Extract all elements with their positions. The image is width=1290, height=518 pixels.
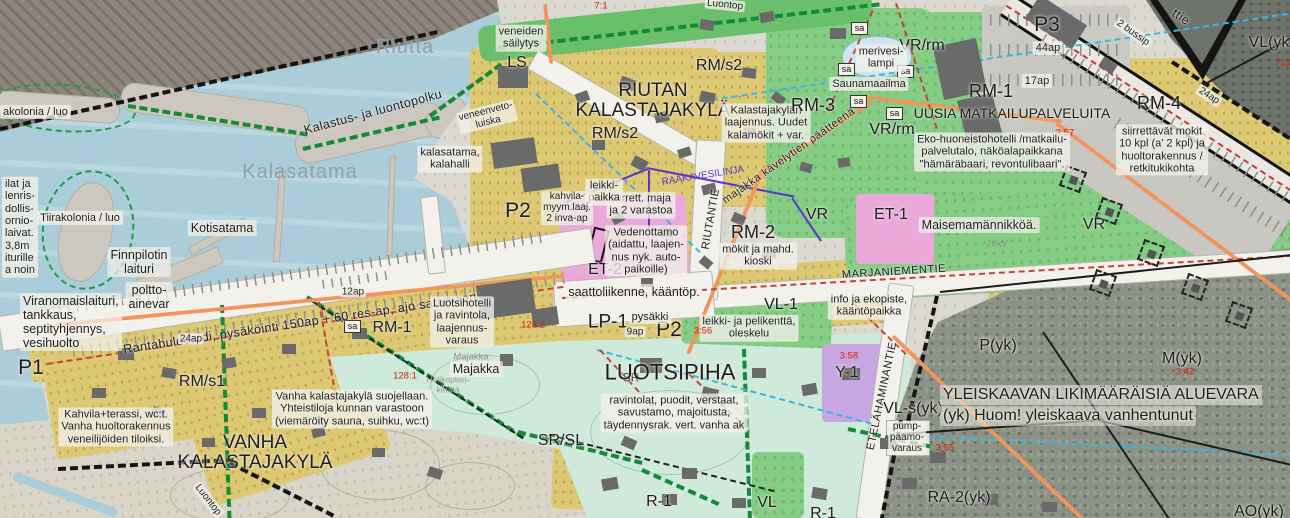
map-label-pys-kki: pysäkki bbox=[629, 310, 672, 324]
map-label-vr-rm: VR/rm bbox=[869, 121, 914, 139]
map-label-luotsipiha: LUOTSIPIHA bbox=[605, 361, 736, 386]
map-label-y-1: Y-1 bbox=[835, 364, 858, 382]
map-label-eko-huoneistohotelli-matkail: Eko-huoneistohotelli /matkailu- palvelut… bbox=[914, 133, 1070, 172]
map-label-luontop: Luontop bbox=[704, 0, 745, 13]
map-label-vl-yk: VL(yk bbox=[1249, 34, 1290, 52]
map-label-7-1: 7:1 bbox=[594, 2, 607, 13]
map-label-uusia-matkailupalveluita: UUSIA MATKAILUPALVELUITA bbox=[914, 106, 1111, 122]
map-label-vr: VR bbox=[806, 206, 828, 224]
map-label-3-56: 3:56 bbox=[694, 327, 713, 338]
map-label-m-yk: M(yk) bbox=[1162, 350, 1202, 368]
map-label-12ap: 12ap bbox=[340, 286, 366, 297]
map-label-715: 715 bbox=[1275, 59, 1290, 70]
map-label-rm-s2: RM/s2 bbox=[696, 57, 742, 75]
map-label-riutta: Riutta bbox=[376, 36, 434, 58]
map-label-24ap: 24ap bbox=[178, 333, 204, 344]
map-label-riutantie: RIUTANTIE bbox=[700, 188, 723, 251]
map-label-saattoliikenne-k-nt-p: saattoliikenne, kääntöp. bbox=[565, 284, 702, 300]
map-label-9ap: 9ap bbox=[625, 326, 646, 337]
map-label-ao-yk: AO(yk) bbox=[1234, 503, 1284, 518]
map-label-siirrett-v-t-mokit-10-kpl-a-: siirrettävät mokit 10 kpl (a' 2 kpl) ja … bbox=[1116, 124, 1208, 175]
map-label-maisemam-nnikk: Maisemamännikköä. bbox=[919, 217, 1040, 233]
map-label-vl-s-yk: VL-s(yk) bbox=[883, 400, 943, 418]
map-label-p3: P3 bbox=[1034, 13, 1060, 37]
map-label-rm-3: RM-3 bbox=[791, 95, 835, 115]
map-label-kotisatama: Kotisatama bbox=[188, 220, 257, 236]
map-label-luotsihotelli-ja-ravintola-l: Luotsihotelli ja ravintola, laajennus- v… bbox=[430, 296, 494, 347]
map-label-marjaniementie: MARJANIEMENTIE bbox=[842, 263, 947, 282]
map-label-20kv: 20kV bbox=[986, 240, 1008, 251]
map-label-lp-1: LP-1 bbox=[588, 311, 628, 332]
map-label-p-yk: P(yk) bbox=[979, 337, 1016, 355]
zoning-plan-map: sasasasasasa RiuttaKalasatamaKotisatamaT… bbox=[0, 0, 1290, 518]
map-label-vedenottamo-aidattu-laajen-n: Vedenottamo (aidattu, laajen- nus nyk. a… bbox=[605, 225, 687, 276]
map-label-vl-1: VL-1 bbox=[764, 296, 798, 314]
map-label-helikopteri-kentt: Helikopteri- kenttä bbox=[427, 375, 470, 394]
map-label-128-2: 128:2 bbox=[521, 321, 545, 332]
map-label-ilat-ja-lenris-dollis-ornio-: ilat ja lenris- dollis- ornio- laivat. 3… bbox=[2, 177, 38, 278]
map-label-vanha-kalastajakyl-suojellaa: Vanha kalastajakylä suojellaan. Yhteisti… bbox=[272, 390, 432, 429]
map-label-akolonia-luo: akolonia / luo bbox=[0, 105, 71, 119]
map-label-rm-4: RM-4 bbox=[1137, 93, 1181, 113]
map-label-rm-1: RM-1 bbox=[969, 81, 1013, 101]
map-label-ls: LS bbox=[507, 54, 527, 72]
map-label-rantabulevardi-pys-k-inti-15: Rantabulevardi, pysäköinti 150ap + 60 re… bbox=[122, 290, 477, 357]
map-label-44ap: 44ap bbox=[1033, 41, 1063, 55]
map-label-merivesi-lampi: merivesi- lampi bbox=[856, 45, 907, 72]
map-label-rm-s2: RM/s2 bbox=[592, 125, 638, 143]
map-label-kalasatama-kalahalli: kalasatama, kalahalli bbox=[417, 146, 482, 173]
map-label-luontop: Luontop bbox=[191, 481, 225, 518]
map-label-rm-s1: RM/s1 bbox=[179, 373, 225, 391]
map-label-raakavesilinja: RAAKAVESILINJA bbox=[661, 164, 745, 188]
map-label-3-42: 3:42 bbox=[1176, 368, 1195, 379]
map-label-rm-2: RM-2 bbox=[731, 222, 775, 242]
map-label-ravintolat-puodit-verstaat-s: ravintolat, puodit, verstaat, savustamo,… bbox=[601, 394, 748, 433]
map-label-r-1: R-1 bbox=[646, 493, 672, 511]
map-label-et-1: ET-1 bbox=[874, 206, 908, 224]
map-label-tiirakolonia-luo: Tiirakolonia / luo bbox=[37, 211, 123, 225]
map-label-r-1: R-1 bbox=[810, 505, 836, 518]
map-label-poltto-ainevar: poltto- ainevar bbox=[126, 282, 173, 312]
map-label-3-58: 3:58 bbox=[840, 352, 859, 363]
map-label-24ap: 24ap bbox=[1195, 84, 1223, 108]
map-label-3-55: 3:55 bbox=[936, 444, 955, 455]
map-label-majakka: Majakka bbox=[453, 353, 488, 364]
map-label-2-bussip: 2 bussip bbox=[1113, 17, 1153, 50]
map-label-ttie: ttie bbox=[1170, 6, 1193, 28]
map-label-sr-sl: SR/SL bbox=[538, 432, 584, 450]
map-label-rm-1: RM-1 bbox=[372, 319, 411, 337]
map-label-pump-paamo-varaus: pump- paamo- varaus bbox=[888, 421, 926, 455]
map-label-riutan-kalastajakyl: RIUTAN KALASTAJAKYLÄ bbox=[576, 81, 731, 121]
map-label-vanha-kalastajakyl: VANHA KALASTAJAKYLÄ bbox=[178, 433, 333, 473]
map-label-veneenveto-luiska: veneenveto- luiska bbox=[456, 99, 519, 135]
map-label-p2: P2 bbox=[505, 199, 531, 223]
map-label-yleiskaavan-likim-r-isi-alue: YLEISKAAVAN LIKIMÄÄRÄISIÄ ALUEVARA bbox=[940, 385, 1262, 405]
map-label-kahvila-terassi-wc-t-vanha-h: Kahvila+terassi, wc:t. Vanha huoltoraken… bbox=[58, 408, 173, 447]
map-label-m-kit-ja-mahd-kioski: mökit ja mahd. kioski bbox=[719, 243, 797, 270]
map-label-yk-huom-yleiskaava-vanhentun: (yk) Huom! yleiskaava vanhentunut bbox=[940, 406, 1196, 426]
map-label-leikki-ja-pelikentt-oleskelu: leikki- ja pelikenttä, oleskelu bbox=[700, 315, 799, 342]
map-label-saunamaailma: Saunamaailma bbox=[829, 77, 908, 91]
map-label-kahvila-myym-laaj-2-inva-ap: kahvila- myym.laaj. 2 inva-ap bbox=[541, 191, 593, 225]
map-label-ra-2-yk: RA-2(yk) bbox=[927, 489, 990, 507]
map-label-vr: VR bbox=[1083, 216, 1105, 234]
map-label-viranomaislaituri-tankkaus-s: Viranomaislaituri, tankkaus, septityhjen… bbox=[20, 293, 122, 351]
map-label-kalasatama: Kalasatama bbox=[242, 161, 358, 183]
map-label-17ap: 17ap bbox=[1022, 74, 1052, 88]
labels-layer: RiuttaKalasatamaKotisatamaTiirakolonia /… bbox=[0, 0, 1290, 518]
map-label-128-1: 128:1 bbox=[393, 372, 417, 383]
map-label-vl: VL bbox=[757, 494, 777, 512]
map-label-p1: P1 bbox=[18, 356, 44, 380]
map-label-veneiden-s-ilytys: veneiden säilytys bbox=[496, 25, 547, 52]
map-label-info-ja-ekopiste-k-nt-paikka: info ja ekopiste, kääntöpaikka bbox=[828, 293, 910, 320]
map-label-kalastus-ja-luontopolku: Kalastus- ja luontopolku bbox=[302, 87, 443, 137]
map-label-finnpilotin-laituri: Finnpilotin laituri bbox=[108, 247, 171, 277]
